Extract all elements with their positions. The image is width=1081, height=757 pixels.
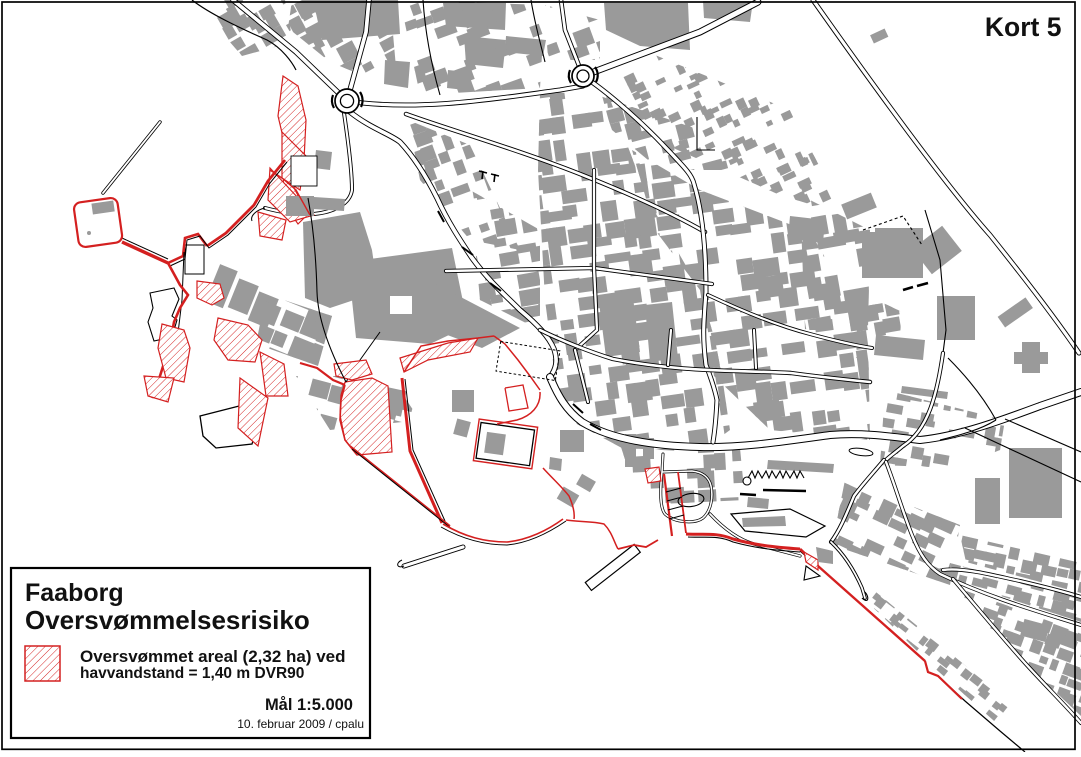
svg-text:Oversvømmet areal (2,32 ha) ve: Oversvømmet areal (2,32 ha) ved (80, 647, 346, 666)
svg-text:10. februar 2009 / cpalu: 10. februar 2009 / cpalu (237, 717, 364, 731)
svg-text:Faaborg: Faaborg (25, 579, 124, 607)
svg-text:havvandstand = 1,40 m DVR90: havvandstand = 1,40 m DVR90 (80, 665, 304, 682)
svg-text:Oversvømmelsesrisiko: Oversvømmelsesrisiko (25, 605, 310, 635)
svg-text:Kort 5: Kort 5 (985, 12, 1062, 42)
svg-text:Mål 1:5.000: Mål 1:5.000 (265, 696, 353, 714)
